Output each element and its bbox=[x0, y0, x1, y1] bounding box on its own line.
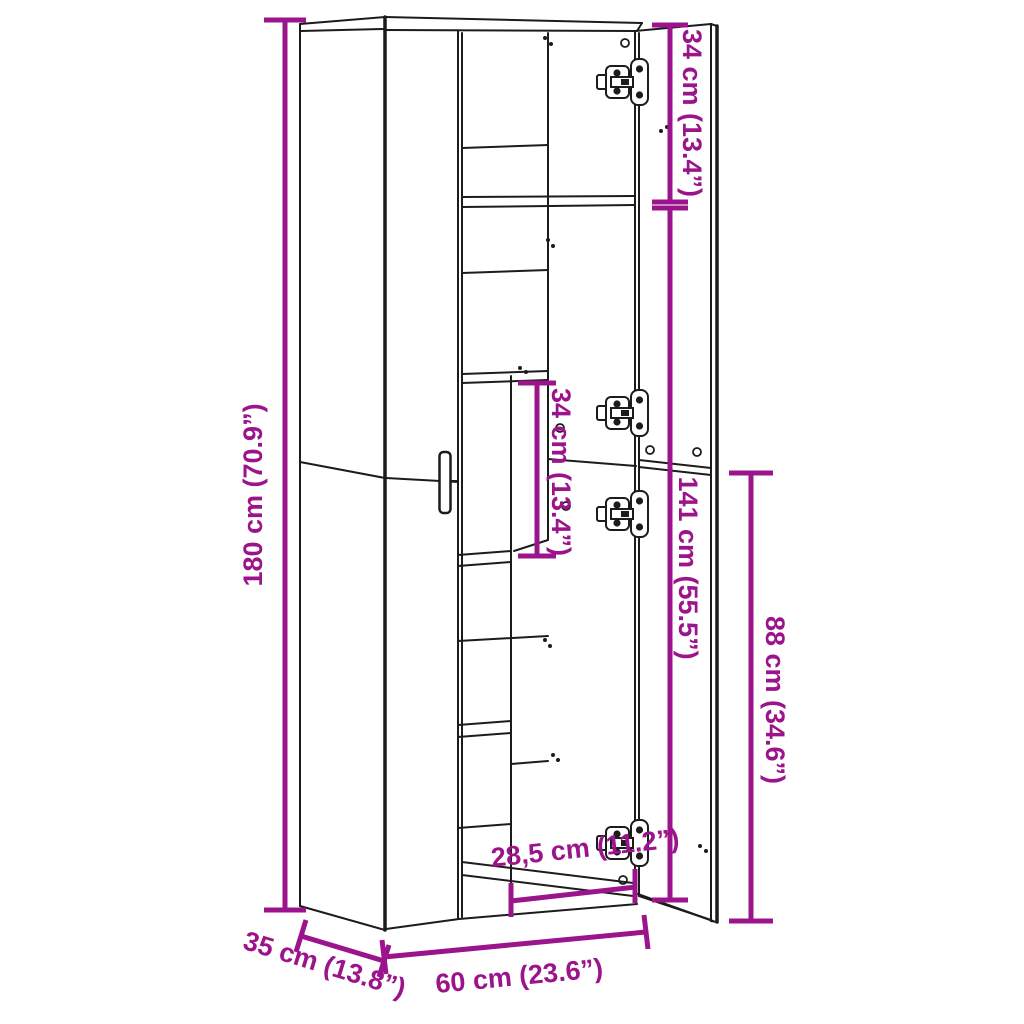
lower-doors-label: 141 cm (55.5”) bbox=[673, 476, 703, 659]
side-panel bbox=[300, 17, 385, 930]
inner-width-label: 28,5 cm (11.2”) bbox=[489, 823, 680, 873]
top-compartment-label: 34 cm (13.4”) bbox=[677, 29, 707, 197]
hinge-icon bbox=[597, 59, 648, 105]
hinges bbox=[597, 59, 648, 866]
width-label: 60 cm (23.6”) bbox=[434, 953, 604, 999]
shelf-spacing-label: 34 cm (13.4”) bbox=[546, 388, 576, 556]
height-label: 180 cm (70.9”) bbox=[238, 403, 268, 586]
hinge-icon bbox=[597, 491, 648, 537]
cabinet-dimension-diagram: 180 cm (70.9”) 34 cm (13.4”) 141 cm (55.… bbox=[0, 0, 1024, 1024]
right-lower-door-label: 88 cm (34.6”) bbox=[760, 616, 790, 784]
top-panel bbox=[385, 17, 642, 31]
cabinet-drawing bbox=[300, 17, 717, 930]
diagram-canvas: 180 cm (70.9”) 34 cm (13.4”) 141 cm (55.… bbox=[0, 0, 1024, 1024]
hinge-icon bbox=[597, 390, 648, 436]
